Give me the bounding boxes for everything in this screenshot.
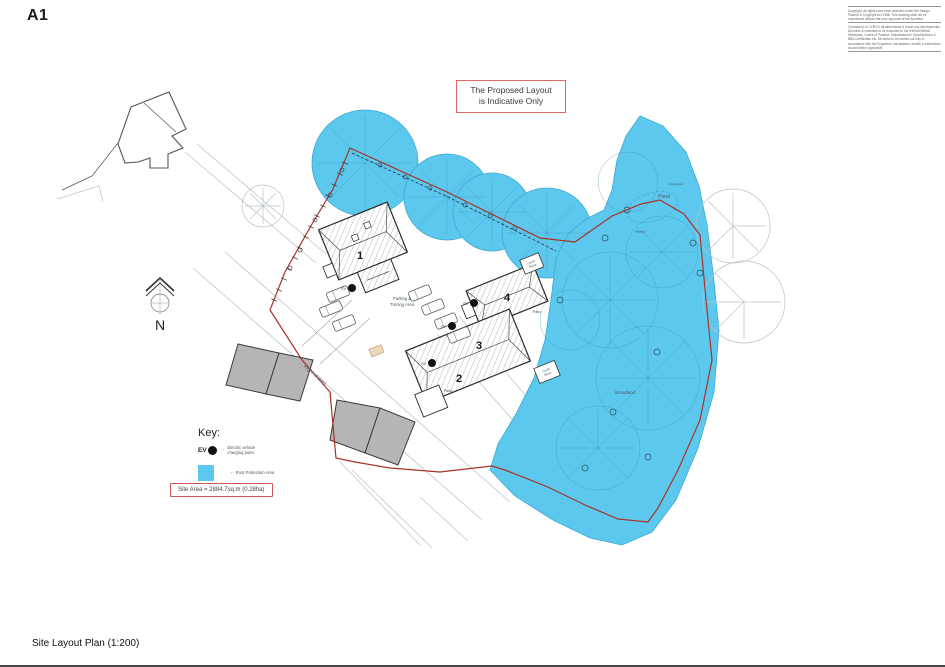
key-ev-label-line-2: charging point [227, 450, 255, 455]
ev-label: EV [463, 302, 468, 306]
key-rpa-label: Root Protection Area [236, 470, 275, 475]
bin-collection-point [369, 345, 384, 357]
notice-line-2: is Indicative Only [459, 96, 563, 107]
copyright-note-1: Copyright. All rights have been asserted… [848, 6, 941, 22]
site-area-box: Site Area = 2884.7sq.m (0.28ha) [170, 483, 273, 497]
building-1-number: 1 [357, 250, 363, 262]
patio-label-2: Patio [443, 388, 453, 393]
key-heading: Key: [198, 427, 328, 439]
key-row-rpa: - Root Protection Area [198, 465, 328, 481]
key-dash: - [223, 447, 225, 453]
root-protection-area-swatch [198, 465, 214, 481]
copyright-block: Copyright. All rights have been asserted… [848, 6, 941, 52]
key-ev-abbr: EV [198, 447, 207, 454]
woodland-label: Woodland [615, 390, 636, 395]
drawing-title: Site Layout Plan (1:200) [32, 638, 139, 649]
north-label: N [155, 317, 165, 333]
key-legend: Key: EV - Electric vehicle charging poin… [198, 427, 328, 490]
copyright-note-2: Contractors to CHECK all dimensions & re… [848, 22, 941, 52]
ev-label: EV [421, 362, 426, 366]
building-2-number: 2 [456, 373, 462, 385]
woodland-rpa-polygon [490, 116, 719, 545]
pond-label-2: Pond [635, 229, 644, 234]
ev-label: EV [341, 287, 346, 291]
key-ev-label: Electric vehicle charging point [227, 445, 255, 456]
pond-label: Pond [658, 194, 670, 200]
building-4-number: 4 [504, 292, 511, 304]
north-arrow: N [146, 278, 174, 333]
parked-cars [319, 284, 471, 344]
patio-label-1: Patio [532, 309, 542, 314]
overgrown-label: Overgrown [669, 182, 684, 186]
building-3-number: 3 [476, 340, 482, 352]
parking-area-label-2: Turning Area [390, 302, 414, 307]
ev-charging-point-icon [208, 446, 217, 455]
parking-area-label-1: Parking & [393, 296, 411, 301]
indicative-layout-notice: The Proposed Layout is Indicative Only [456, 80, 566, 113]
key-row-ev: EV - Electric vehicle charging point [198, 445, 328, 456]
sheet-size-label: A1 [27, 7, 48, 25]
existing-house-outline [62, 92, 186, 190]
key-dash: - [231, 470, 233, 476]
notice-line-1: The Proposed Layout [459, 85, 563, 96]
ev-label: EV [441, 325, 446, 329]
